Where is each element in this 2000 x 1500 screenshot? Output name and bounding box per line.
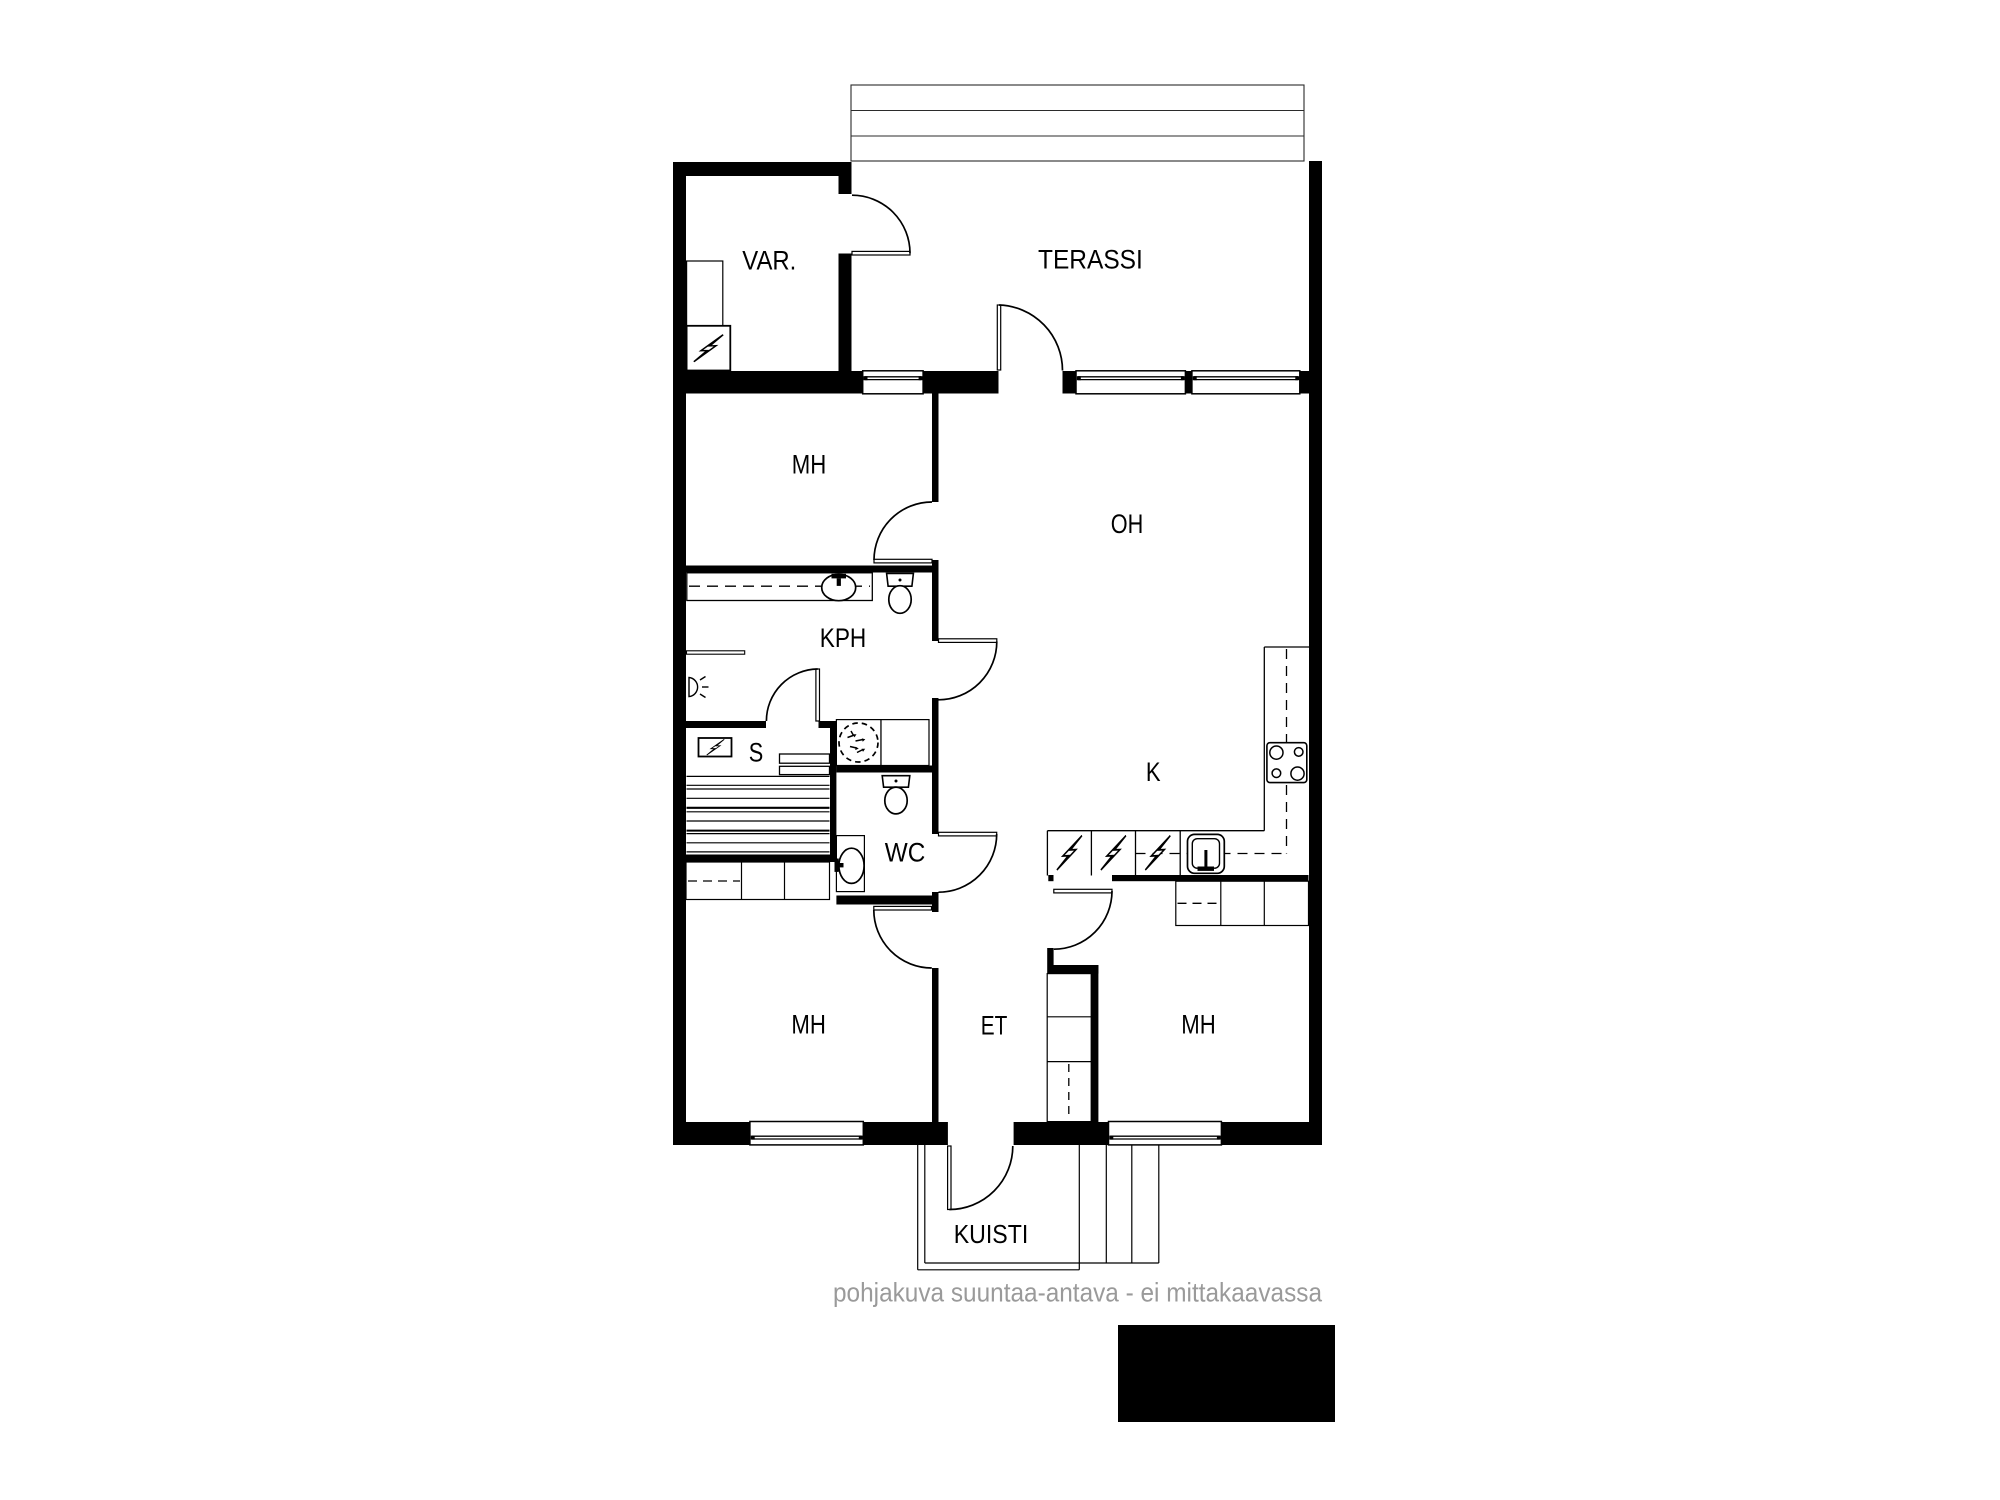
svg-text:TERASSI: TERASSI xyxy=(1038,245,1143,275)
svg-text:VAR.: VAR. xyxy=(742,246,796,276)
svg-text:MH: MH xyxy=(792,449,827,479)
svg-text:MH: MH xyxy=(791,1010,826,1040)
svg-text:KPH: KPH xyxy=(820,623,867,653)
svg-text:WC: WC xyxy=(885,838,926,868)
svg-text:pohjakuva suuntaa-antava - ei: pohjakuva suuntaa-antava - ei mittakaava… xyxy=(833,1278,1323,1308)
svg-text:MH: MH xyxy=(1181,1010,1216,1040)
svg-text:KUISTI: KUISTI xyxy=(954,1219,1029,1249)
svg-text:OH: OH xyxy=(1111,509,1144,539)
svg-text:S: S xyxy=(749,738,764,768)
svg-text:ET: ET xyxy=(981,1011,1008,1041)
svg-text:K: K xyxy=(1146,757,1161,787)
